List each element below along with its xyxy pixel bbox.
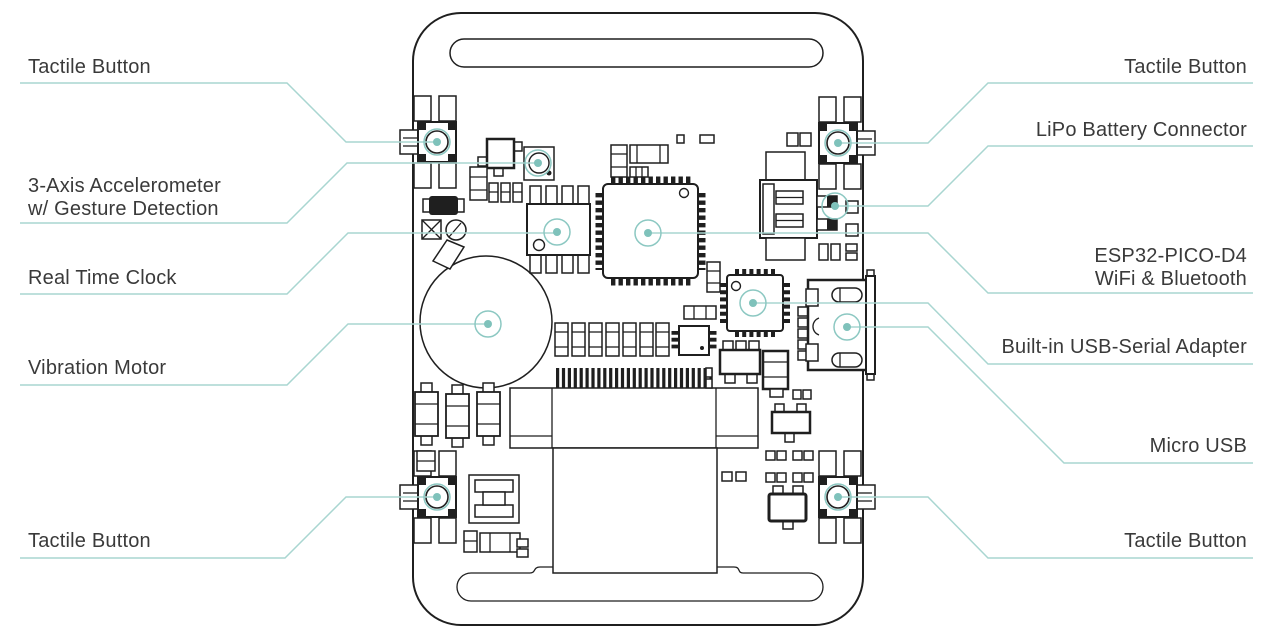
marker-dot-real-time-clock	[553, 228, 561, 236]
label-tactile-button-bottom-right: Tactile Button	[1124, 530, 1247, 553]
label-accelerometer: 3-Axis Accelerometerw/ Gesture Detection	[28, 175, 221, 221]
marker-dot-tactile-button-top-right	[834, 139, 842, 147]
label-text: Vibration Motor	[28, 357, 166, 380]
callout-line-lipo-battery-connector	[835, 146, 1253, 206]
label-text: Tactile Button	[1124, 56, 1247, 79]
label-vibration-motor: Vibration Motor	[28, 357, 166, 380]
marker-dot-lipo-battery-connector	[831, 202, 839, 210]
label-text: Tactile Button	[1124, 530, 1247, 553]
display-flex-cable	[553, 448, 717, 573]
label-text: w/ Gesture Detection	[28, 198, 221, 221]
label-tactile-button-top-right: Tactile Button	[1124, 56, 1247, 79]
label-text: WiFi & Bluetooth	[1094, 268, 1247, 291]
marker-dot-tactile-button-top-left	[433, 138, 441, 146]
label-esp32-pico-d4: ESP32-PICO-D4WiFi & Bluetooth	[1094, 245, 1247, 291]
label-text: Built-in USB-Serial Adapter	[1001, 336, 1247, 359]
label-text: Tactile Button	[28, 530, 151, 553]
label-text: 3-Axis Accelerometer	[28, 175, 221, 198]
marker-dot-tactile-button-bottom-left	[433, 493, 441, 501]
label-tactile-button-top-left: Tactile Button	[28, 56, 151, 79]
marker-dot-usb-serial-adapter	[749, 299, 757, 307]
pcb-annotation-diagram: Tactile Button 3-Axis Accelerometerw/ Ge…	[0, 0, 1280, 640]
label-text: Tactile Button	[28, 56, 151, 79]
strap-slot-top	[450, 39, 823, 67]
marker-dot-tactile-button-bottom-right	[834, 493, 842, 501]
micro-usb-connector	[798, 270, 875, 380]
label-text: ESP32-PICO-D4	[1094, 245, 1247, 268]
label-text: Micro USB	[1150, 435, 1247, 458]
marker-dot-micro-usb	[843, 323, 851, 331]
label-real-time-clock: Real Time Clock	[28, 267, 177, 290]
marker-dot-vibration-motor	[484, 320, 492, 328]
label-text: LiPo Battery Connector	[1036, 119, 1247, 142]
callout-line-tactile-button-top-left	[20, 83, 437, 142]
marker-dot-esp32-pico-d4	[644, 229, 652, 237]
label-tactile-button-bottom-left: Tactile Button	[28, 530, 151, 553]
board-drawing	[0, 0, 1280, 640]
label-text: Real Time Clock	[28, 267, 177, 290]
label-lipo-battery-connector: LiPo Battery Connector	[1036, 119, 1247, 142]
label-usb-serial-adapter: Built-in USB-Serial Adapter	[1001, 336, 1247, 359]
marker-dot-accelerometer	[534, 159, 542, 167]
label-micro-usb: Micro USB	[1150, 435, 1247, 458]
